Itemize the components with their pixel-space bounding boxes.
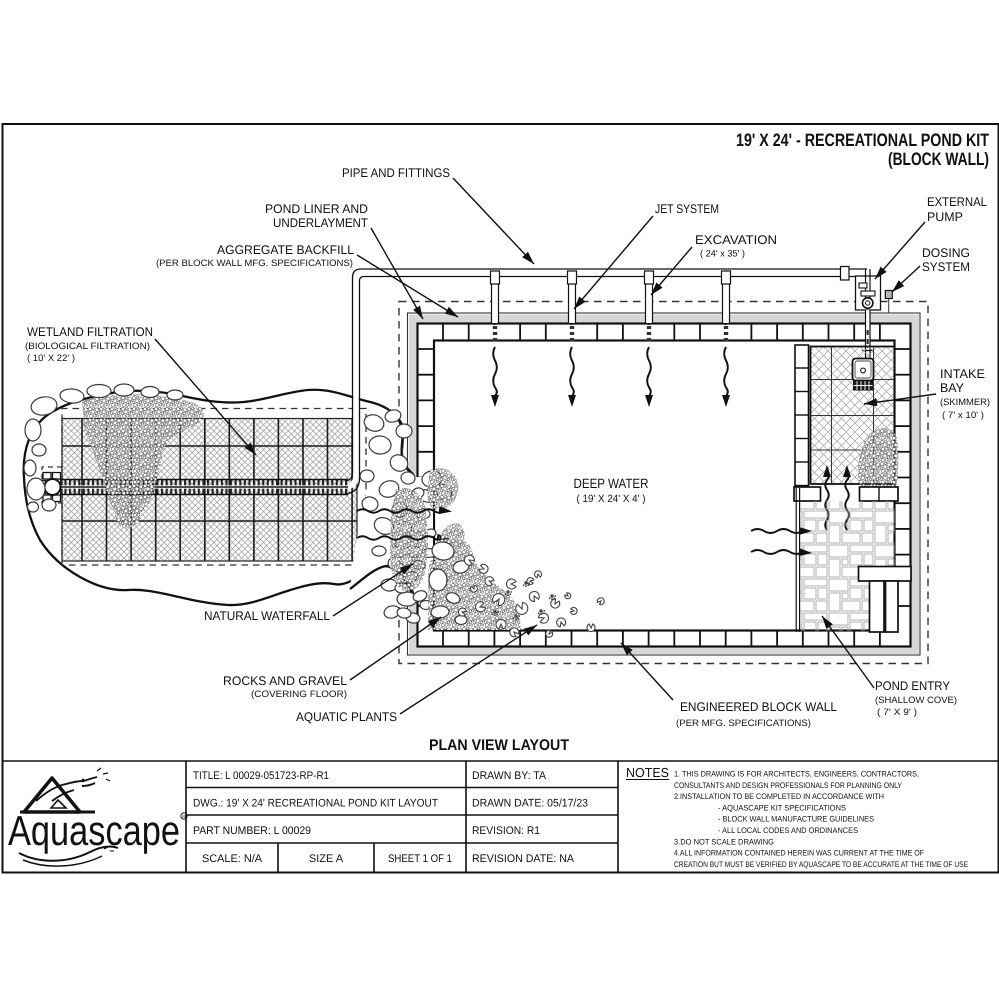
svg-text:SHEET 1 OF 1: SHEET 1 OF 1 [388,853,452,865]
svg-text:(BIOLOGICAL FILTRATION): (BIOLOGICAL FILTRATION) [25,341,150,351]
svg-text:REVISION: R1: REVISION: R1 [472,825,540,837]
svg-text:CREATION BUT MUST BE VERIFIED: CREATION BUT MUST BE VERIFIED BY AQUASCA… [674,860,968,869]
svg-text:POND LINER AND: POND LINER AND [265,202,368,216]
svg-text:19' X 24' - RECREATIONAL POND: 19' X 24' - RECREATIONAL POND KIT [736,130,989,150]
svg-text:REVISION DATE: NA: REVISION DATE: NA [472,853,575,865]
svg-text:DRAWN BY: TA: DRAWN BY: TA [472,770,547,782]
svg-text:JET SYSTEM: JET SYSTEM [655,202,719,216]
svg-text:AGGREGATE BACKFILL: AGGREGATE BACKFILL [217,243,354,257]
svg-text:DRAWN DATE: 05/17/23: DRAWN DATE: 05/17/23 [472,798,588,810]
svg-text:( 24' x 35' ): ( 24' x 35' ) [700,249,745,259]
svg-text:(SHALLOW COVE): (SHALLOW COVE) [875,695,957,705]
svg-text:PLAN VIEW LAYOUT: PLAN VIEW LAYOUT [429,737,569,754]
svg-text:DOSING: DOSING [922,246,970,260]
svg-text:(COVERING FLOOR): (COVERING FLOOR) [251,689,347,699]
svg-text:(PER MFG. SPECIFICATIONS): (PER MFG. SPECIFICATIONS) [676,718,811,728]
svg-text:SIZE A: SIZE A [309,853,344,865]
svg-text:(BLOCK WALL): (BLOCK WALL) [888,149,989,169]
svg-text:(SKIMMER): (SKIMMER) [940,397,990,407]
svg-text:- AQUASCAPE KIT SPECIFICATIONS: - AQUASCAPE KIT SPECIFICATIONS [718,803,846,812]
svg-text:DWG.: 19' X 24' RECREATIONAL P: DWG.: 19' X 24' RECREATIONAL POND KIT LA… [193,798,438,810]
svg-text:( 7' X 9' ): ( 7' X 9' ) [877,707,917,717]
svg-text:1. THIS DRAWING IS FOR ARCHITE: 1. THIS DRAWING IS FOR ARCHITECTS, ENGIN… [674,770,919,779]
svg-text:ROCKS AND GRAVEL: ROCKS AND GRAVEL [223,674,347,688]
svg-text:( 10' X 22' ): ( 10' X 22' ) [27,353,75,363]
svg-text:SYSTEM: SYSTEM [922,260,970,274]
svg-text:TITLE: L 00029-051723-RP-R1: TITLE: L 00029-051723-RP-R1 [193,770,329,782]
svg-text:(PER BLOCK WALL MFG. SPECIFICA: (PER BLOCK WALL MFG. SPECIFICATIONS) [156,258,353,268]
svg-text:R: R [182,815,186,821]
svg-text:Aquascape: Aquascape [8,807,180,854]
svg-text:- ALL LOCAL CODES AND ORDINANC: - ALL LOCAL CODES AND ORDINANCES [718,826,858,835]
svg-text:AQUATIC PLANTS: AQUATIC PLANTS [296,710,397,724]
svg-text:CONSULTANTS AND DESIGN PROFESS: CONSULTANTS AND DESIGN PROFESSIONALS FOR… [674,781,903,790]
svg-text:BAY: BAY [940,381,965,395]
svg-text:INTAKE: INTAKE [940,367,985,381]
svg-text:PART NUMBER: L 00029: PART NUMBER: L 00029 [193,825,311,837]
svg-text:EXTERNAL: EXTERNAL [927,195,987,209]
svg-text:( 7' x 10' ): ( 7' x 10' ) [942,410,984,420]
svg-text:PUMP: PUMP [927,210,963,224]
svg-text:PIPE AND FITTINGS: PIPE AND FITTINGS [342,166,450,180]
svg-text:POND ENTRY: POND ENTRY [875,679,951,693]
svg-text:NOTES: NOTES [626,765,669,780]
svg-text:EXCAVATION: EXCAVATION [695,233,777,247]
svg-text:DEEP WATER: DEEP WATER [574,476,649,491]
svg-text:UNDERLAYMENT: UNDERLAYMENT [273,216,368,230]
svg-text:2.INSTALLATION TO BE COMPLETED: 2.INSTALLATION TO BE COMPLETED IN ACCORD… [674,792,884,801]
svg-text:3.DO NOT SCALE DRAWING: 3.DO NOT SCALE DRAWING [674,837,774,846]
svg-text:WETLAND FILTRATION: WETLAND FILTRATION [27,325,153,339]
svg-text:NATURAL WATERFALL: NATURAL WATERFALL [204,609,330,623]
svg-text:( 19' X 24' X 4' ): ( 19' X 24' X 4' ) [577,493,646,505]
svg-text:- BLOCK WALL MANUFACTURE GUIDE: - BLOCK WALL MANUFACTURE GUIDELINES [718,815,874,824]
svg-text:4.ALL INFORMATION CONTAINED HE: 4.ALL INFORMATION CONTAINED HEREIN WAS C… [674,849,924,858]
svg-text:SCALE: N/A: SCALE: N/A [202,853,263,865]
svg-text:ENGINEERED BLOCK WALL: ENGINEERED BLOCK WALL [680,700,837,714]
